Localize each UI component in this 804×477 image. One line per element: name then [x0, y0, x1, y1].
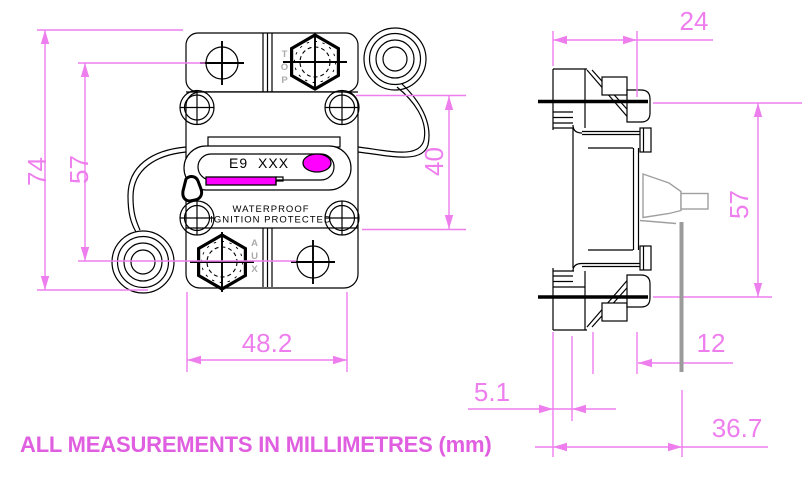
- aux-marking: AUX: [249, 238, 259, 277]
- dim-overall-depth-label: 36.7: [712, 413, 763, 443]
- dim-bracket-thickness-label: 5.1: [474, 377, 510, 407]
- dim-overall-height-label: 74: [22, 157, 52, 186]
- cable-left: [128, 147, 186, 232]
- dim-panel-offset-label: 12: [697, 328, 726, 358]
- front-device-label: E9 XXX: [229, 155, 289, 171]
- side-hex-nut-bottom: [627, 275, 650, 307]
- dim-panel-offset: 12: [593, 328, 733, 374]
- dim-top-depth: 24: [553, 6, 713, 97]
- side-terminal-lug-bottom: [640, 246, 651, 270]
- waterproof-marking: WATERPROOF: [232, 204, 309, 215]
- dim-top-depth-label: 24: [680, 6, 709, 36]
- side-bottom-flange: [538, 268, 650, 330]
- dim-overall-depth: 36.7: [535, 332, 768, 457]
- side-hex-nut-top: [627, 90, 650, 122]
- dim-body-height: 40: [356, 96, 466, 230]
- dim-stud-span-label: 57: [724, 190, 754, 219]
- front-view: E9 XXX WATERPROOF IGNITION PROTECTED: [112, 28, 429, 293]
- dim-width-label: 48.2: [242, 328, 293, 358]
- dim-body-height-label: 40: [419, 147, 449, 176]
- measurement-note: ALL MEASUREMENTS IN MILLIMETRES (mm): [20, 432, 492, 457]
- reset-button-front: [303, 154, 331, 172]
- dim-hole-span-label: 57: [64, 155, 94, 184]
- side-terminal-lug-top: [640, 128, 651, 152]
- side-body: [573, 125, 651, 271]
- top-marking: TOP: [279, 49, 289, 88]
- dim-bracket-thickness: 5.1: [468, 336, 616, 421]
- circuit-breaker-drawing: E9 XXX WATERPROOF IGNITION PROTECTED: [0, 0, 804, 477]
- trip-lever: [183, 177, 202, 201]
- technical-drawing-page: E9 XXX WATERPROOF IGNITION PROTECTED: [0, 0, 804, 477]
- side-top-flange: [538, 69, 650, 130]
- ignition-protected-marking: IGNITION PROTECTED: [210, 215, 331, 226]
- dim-width: 48.2: [187, 292, 347, 372]
- dust-cap-top-right-icon: [364, 28, 426, 90]
- trip-indicator-strip: [206, 177, 276, 185]
- dust-cap-bottom-left-icon: [112, 231, 174, 293]
- reset-button-side: [640, 174, 708, 224]
